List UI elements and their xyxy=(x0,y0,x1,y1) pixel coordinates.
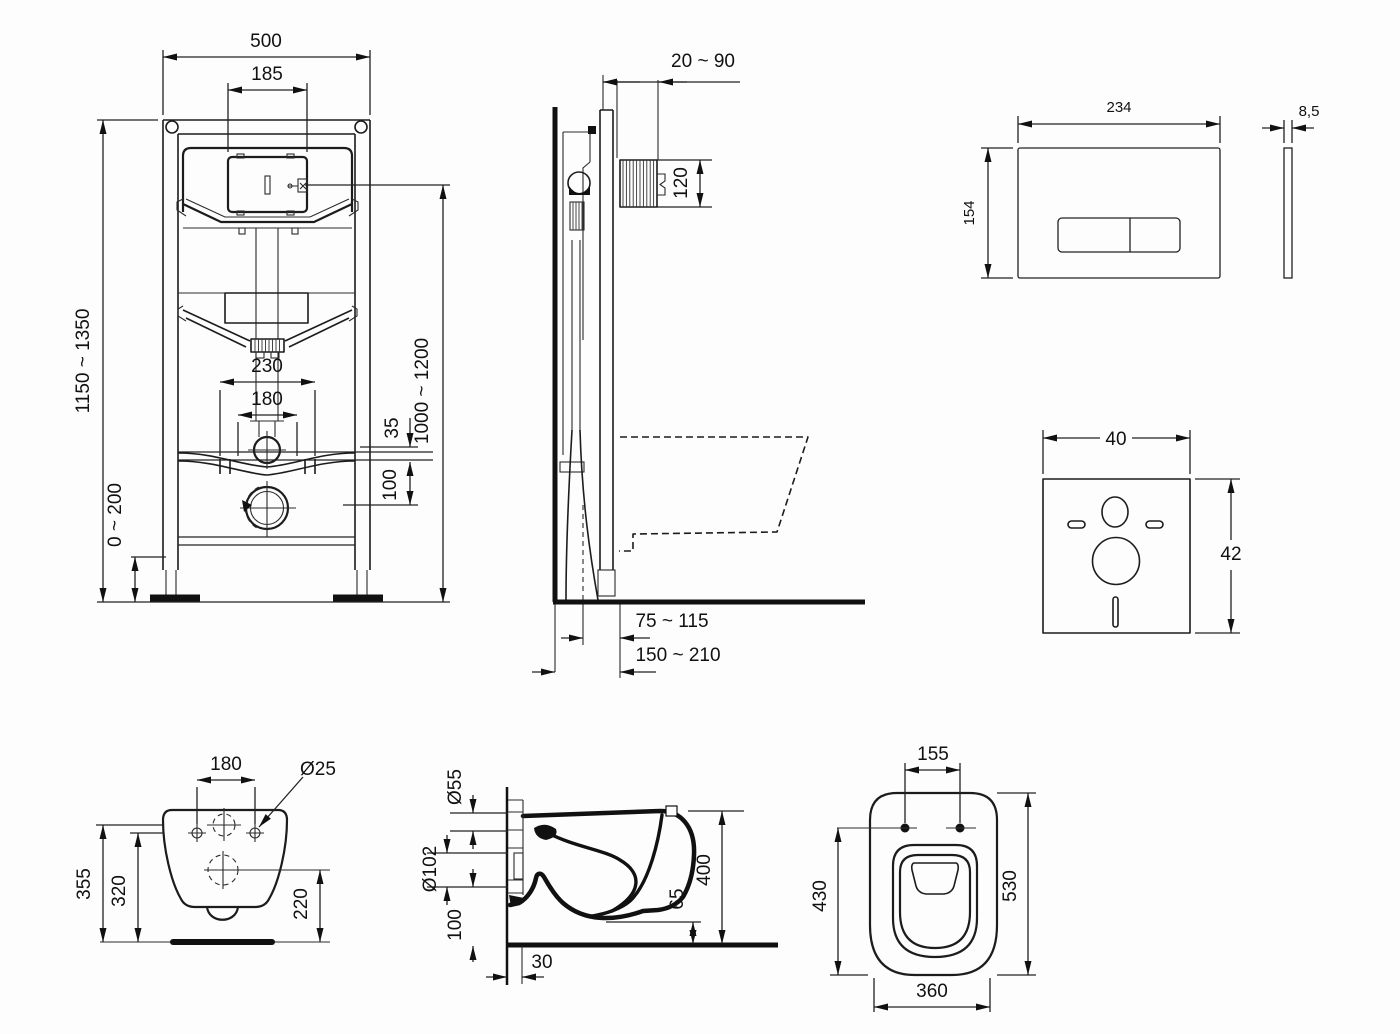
dim-bowl-depth: 400 xyxy=(694,854,715,886)
inlet-gasket xyxy=(534,825,557,840)
seat-ring xyxy=(893,845,977,957)
dim-pad-height: 42 xyxy=(1220,544,1241,565)
dim-pad-width: 40 xyxy=(1105,429,1126,450)
view-frame-front: 500 185 1150 ~ 1350 1000 ~ 1200 230 180 … xyxy=(73,31,450,602)
outlet-cutout xyxy=(1093,538,1140,585)
dim-seat-hole-spacing: 155 xyxy=(917,744,949,765)
dim-length-to-holes: 430 xyxy=(810,880,831,912)
bowl-top-linework xyxy=(837,793,997,975)
dim-bowl-height-total: 355 xyxy=(74,868,95,900)
dim-tank-width: 185 xyxy=(251,64,283,85)
drawing-canvas: 500 185 1150 ~ 1350 1000 ~ 1200 230 180 … xyxy=(0,0,1400,1034)
outlet-bump xyxy=(207,907,238,920)
dim-wall-clearance: 20 ~ 90 xyxy=(671,51,735,72)
view-bowl-top: 155 430 530 360 xyxy=(810,744,1036,1012)
dim-flush-height-range: 1000 ~ 1200 xyxy=(412,338,433,444)
bowl-rear-linework xyxy=(100,808,330,942)
flush-plate-dimensions: 234 154 8,5 xyxy=(961,99,1319,278)
bowl-top-dimensions: 155 430 530 360 xyxy=(810,744,1036,1012)
dim-inlet-diameter: Ø55 xyxy=(445,769,466,805)
sound-pad-dimensions: 40 42 xyxy=(1043,429,1242,633)
dim-outlet-diameter: Ø102 xyxy=(420,846,441,892)
dim-front-clearance: 65 xyxy=(667,888,688,909)
view-sound-pad: 40 42 xyxy=(1043,429,1242,633)
dim-length-total: 530 xyxy=(1000,870,1021,902)
frame-bolt-hole-left xyxy=(166,121,178,133)
view-bowl-rear: 180 Ø25 355 320 220 xyxy=(74,754,336,942)
dim-hole-spacing-inner: 180 xyxy=(251,389,283,410)
frame-foot-side xyxy=(598,570,615,596)
flush-plate-face xyxy=(1018,148,1220,278)
sound-pad-outline xyxy=(1043,479,1190,633)
view-frame-side: 20 ~ 90 120 75 ~ 115 150 ~ 210 xyxy=(532,51,865,678)
dim-hole-spacing-outer: 230 xyxy=(251,356,283,377)
dim-plate-thickness: 8,5 xyxy=(1299,103,1320,120)
bowl-phantom-outline xyxy=(619,437,808,551)
bowl-opening xyxy=(900,855,970,948)
support-plate xyxy=(225,293,308,323)
dim-bowl-height-outlet: 220 xyxy=(291,888,312,920)
view-bowl-side: Ø55 Ø102 100 30 65 400 xyxy=(420,769,778,985)
flush-unit-box xyxy=(228,157,307,212)
dim-bowl-width: 360 xyxy=(916,981,948,1002)
dim-foot-adjustment: 0 ~ 200 xyxy=(105,483,126,547)
view-flush-plate: 234 154 8,5 xyxy=(961,99,1319,278)
dim-frame-width: 500 xyxy=(250,31,282,52)
dim-outlet-offset: 100 xyxy=(380,469,401,501)
dim-outlet-to-wall: 75 ~ 115 xyxy=(635,611,708,632)
dim-bowl-hole-spacing: 180 xyxy=(210,754,242,775)
dim-frame-height-range: 1150 ~ 1350 xyxy=(73,309,94,414)
drain-bend xyxy=(566,430,598,600)
dim-bowl-height-holes: 320 xyxy=(109,875,130,907)
dim-depth-range: 150 ~ 210 xyxy=(635,645,720,666)
flush-plate-linework xyxy=(1018,148,1292,278)
sound-pad-linework xyxy=(1043,479,1190,633)
dim-inlet-offset: 35 xyxy=(382,417,403,438)
frame-side-linework xyxy=(553,75,865,678)
frame-bolt-hole-right xyxy=(355,121,367,133)
flush-plate-edge xyxy=(1284,148,1292,278)
bowl-rear-dimensions: 180 Ø25 355 320 220 xyxy=(74,754,336,942)
flush-buttons xyxy=(1058,218,1180,252)
dim-outlet-height: 100 xyxy=(445,909,466,941)
water-surface xyxy=(912,863,959,894)
bolt-slot-right xyxy=(1146,521,1163,528)
frame-front-dimensions: 500 185 1150 ~ 1350 1000 ~ 1200 230 180 … xyxy=(73,31,450,602)
bolt-slot-left xyxy=(1068,521,1085,528)
dim-bowl-hole-diameter: Ø25 xyxy=(300,759,336,780)
bottom-slot xyxy=(1113,597,1118,627)
flush-bend-sleeve xyxy=(620,160,657,207)
seat-hinge-hole xyxy=(666,806,677,816)
inlet-cutout xyxy=(1102,497,1128,527)
dim-plate-height: 154 xyxy=(961,200,978,225)
dim-outlet-wall-offset: 30 xyxy=(531,952,552,973)
dim-flush-bend-height: 120 xyxy=(671,167,692,199)
dim-plate-width: 234 xyxy=(1106,99,1131,116)
technical-drawing-sheet: 500 185 1150 ~ 1350 1000 ~ 1200 230 180 … xyxy=(0,0,1400,1034)
